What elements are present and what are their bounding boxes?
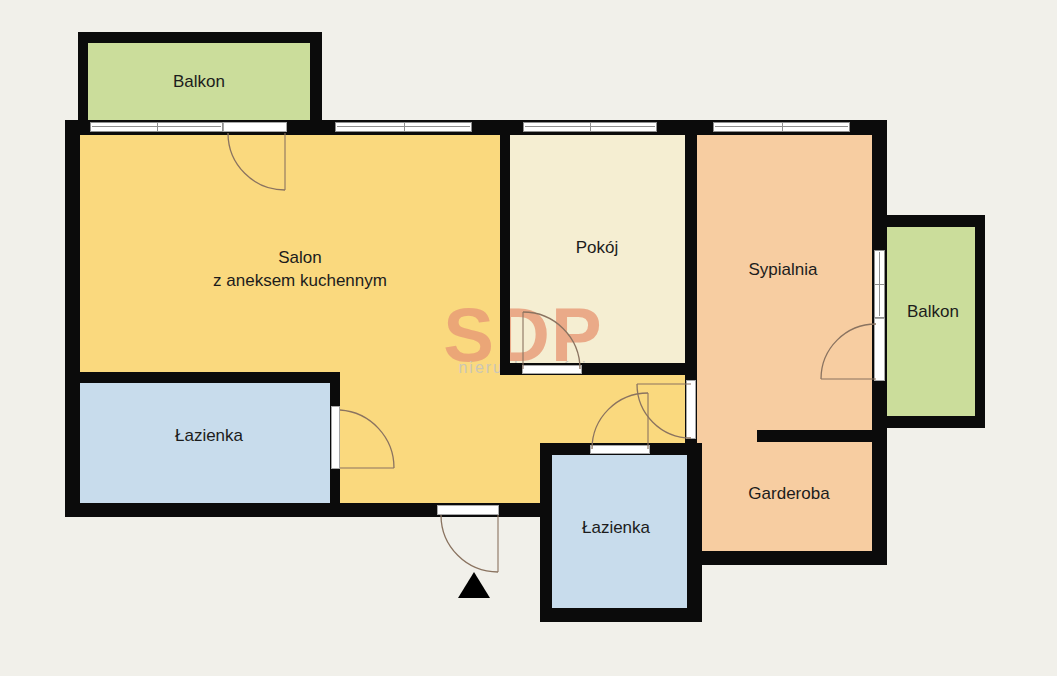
room-pokoj-label: Pokój (576, 236, 619, 259)
wall-balkon-top-right (310, 32, 322, 122)
room-salon-label-line1: Salon (278, 248, 321, 267)
wall-balkon-right-bottom (878, 416, 985, 428)
door-opening-balkon-top (223, 122, 287, 132)
wall-exterior-bottom-lazienka-mid (540, 608, 702, 622)
room-sypialnia-label: Sypialnia (749, 258, 818, 281)
wall-lazienka-left-top (65, 372, 340, 383)
door-opening-lazienka-mid (590, 445, 650, 454)
room-balkon-top-label: Balkon (173, 70, 225, 93)
wall-pokoj-left (500, 120, 510, 375)
window-sypialnia (713, 122, 850, 132)
room-garderoba-label: Garderoba (748, 482, 829, 505)
door-opening-balkon-right (874, 318, 885, 381)
window-pokoj (523, 122, 657, 132)
floor-plan-canvas: SDP nieruchomości (0, 0, 1057, 676)
room-balkon-right-label: Balkon (907, 300, 959, 323)
door-arc-entrance (441, 515, 498, 572)
room-salon-label: Salon z aneksem kuchennym (213, 246, 387, 292)
window-balkon-right (874, 250, 885, 318)
room-lazienka-left-label: Łazienka (175, 424, 243, 447)
room-salon-label-line2: z aneksem kuchennym (213, 271, 387, 290)
wall-balkon-top-left (78, 32, 88, 122)
door-opening-sypialnia (686, 380, 696, 439)
door-opening-entrance (437, 505, 499, 515)
wall-garderoba-divider (757, 430, 885, 442)
room-lazienka-mid-label: Łazienka (582, 516, 650, 539)
window-balkon-top (90, 122, 223, 132)
wall-lazienka-mid-right (687, 443, 702, 622)
wall-exterior-left (65, 120, 80, 517)
wall-balkon-right-right (975, 215, 985, 428)
window-salon (335, 122, 472, 132)
wall-lazienka-mid-left (540, 443, 552, 622)
door-opening-pokoj (522, 365, 582, 374)
entrance-marker (458, 572, 490, 598)
wall-exterior-bottom-garderoba (687, 551, 885, 565)
wall-balkon-right-top (878, 215, 985, 227)
wall-balkon-top-top (78, 32, 322, 43)
door-opening-lazienka-left (331, 406, 340, 469)
